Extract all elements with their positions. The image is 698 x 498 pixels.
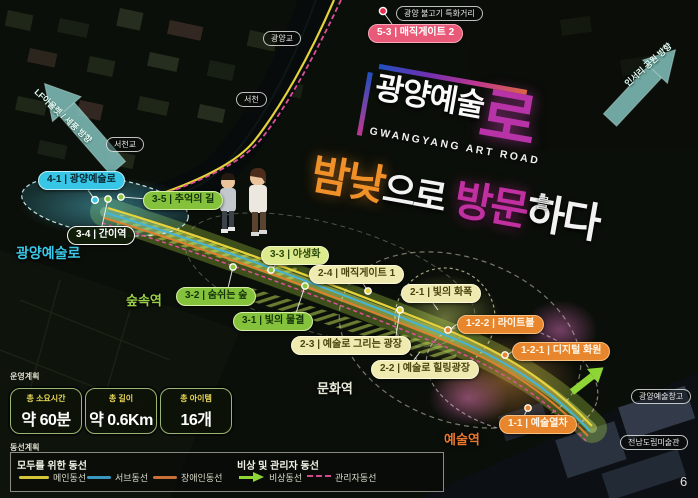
- stat-label: 총 소요시간: [26, 393, 65, 404]
- stat-value: 약 0.6Km: [89, 406, 153, 430]
- stat-box-duration: 총 소요시간 약 60분: [10, 388, 82, 434]
- poi-bubble-1-2-1: 1-2-1 | 디지털 화원: [512, 342, 610, 361]
- poi-bubble-3-4: 3-4 | 간이역: [67, 226, 135, 245]
- poi-bubble-2-3: 2-3 | 예술로 그리는 광장: [291, 336, 411, 355]
- legend-label-emergency: 비상동선: [269, 471, 302, 484]
- zone-label-forest-station: 숲속역: [126, 290, 162, 309]
- route-legend: 모두를 위한 동선 메인동선 서브동선 장애인동선 비상 및 관리자 동선 비상…: [10, 452, 444, 492]
- poi-bubble-2-1: 2-1 | 빛의 화폭: [401, 284, 481, 303]
- zone-label-culture-station: 문화역: [317, 378, 353, 397]
- legend-label-sub: 서브동선: [115, 471, 148, 484]
- tagline-part-3: 방문: [441, 173, 531, 234]
- tagline-part-2: 으로: [380, 167, 448, 218]
- stat-label: 총 아이템: [180, 393, 212, 404]
- operation-plan-label: 운영계획: [10, 371, 39, 382]
- place-bubble-gwangyang-bridge: 광양교: [263, 31, 301, 46]
- stat-value: 약 60분: [21, 406, 70, 430]
- slide: { "page": { "slide_number": "6" }, "head…: [0, 0, 698, 498]
- place-bubble-seocheon: 서천: [236, 92, 267, 107]
- poi-bubble-5-3: 5-3 | 매직게이트 2: [368, 24, 463, 43]
- zone-label-art-station: 예술역: [444, 429, 480, 448]
- tagline-part-1: 밤낮: [307, 150, 387, 209]
- poi-bubble-1-2-2: 1-2-2 | 라이트볼: [457, 315, 544, 334]
- place-bubble-art-warehouse: 광양예술창고: [631, 389, 691, 404]
- stat-value: 16개: [180, 406, 211, 430]
- legend-line-sub-icon: [87, 476, 111, 479]
- legend-group-title-all: 모두를 위한 동선: [17, 457, 87, 472]
- legend-emergency-arrowhead-icon: [253, 472, 264, 482]
- poi-bubble-3-5: 3-5 | 추억의 길: [143, 191, 223, 210]
- poi-bubble-2-4: 2-4 | 매직게이트 1: [309, 265, 404, 284]
- tagline-part-4: 하다: [523, 188, 603, 247]
- stat-box-length: 총 길이 약 0.6Km: [85, 388, 157, 434]
- zone-label-art-road: 광양예술로: [16, 243, 80, 263]
- poi-bubble-3-1: 3-1 | 빛의 물결: [233, 312, 313, 331]
- legend-group-title-emergency: 비상 및 관리자 동선: [237, 457, 319, 472]
- legend-line-accessible-icon: [153, 476, 177, 479]
- legend-label-main: 메인동선: [53, 471, 86, 484]
- page-number: 6: [680, 474, 687, 489]
- poi-bubble-3-3: 3-3 | 야생화: [261, 246, 329, 265]
- place-bubble-bulgogi-street: 광양 불고기 특화거리: [396, 6, 483, 21]
- legend-line-main-icon: [19, 476, 49, 479]
- stat-box-items: 총 아이템 16개: [160, 388, 232, 434]
- poi-bubble-3-2: 3-2 | 숨쉬는 숲: [176, 287, 256, 306]
- stat-label: 총 길이: [109, 393, 133, 404]
- poi-bubble-2-2: 2-2 | 예술로 힐링광장: [371, 360, 479, 379]
- poi-bubble-1-1: 1-1 | 예술열차: [499, 415, 577, 434]
- legend-manager-dashed-icon: [307, 475, 331, 477]
- legend-label-accessible: 장애인동선: [181, 471, 222, 484]
- place-bubble-art-museum: 전남도립미술관: [620, 435, 688, 450]
- title-big-char: 로: [476, 91, 541, 150]
- place-bubble-seocheon-bridge: 서천교: [106, 137, 144, 152]
- legend-emergency-arrow-icon: [239, 476, 253, 479]
- legend-label-manager: 관리자동선: [335, 471, 376, 484]
- poi-bubble-4-1: 4-1 | 광양예술로: [38, 171, 125, 190]
